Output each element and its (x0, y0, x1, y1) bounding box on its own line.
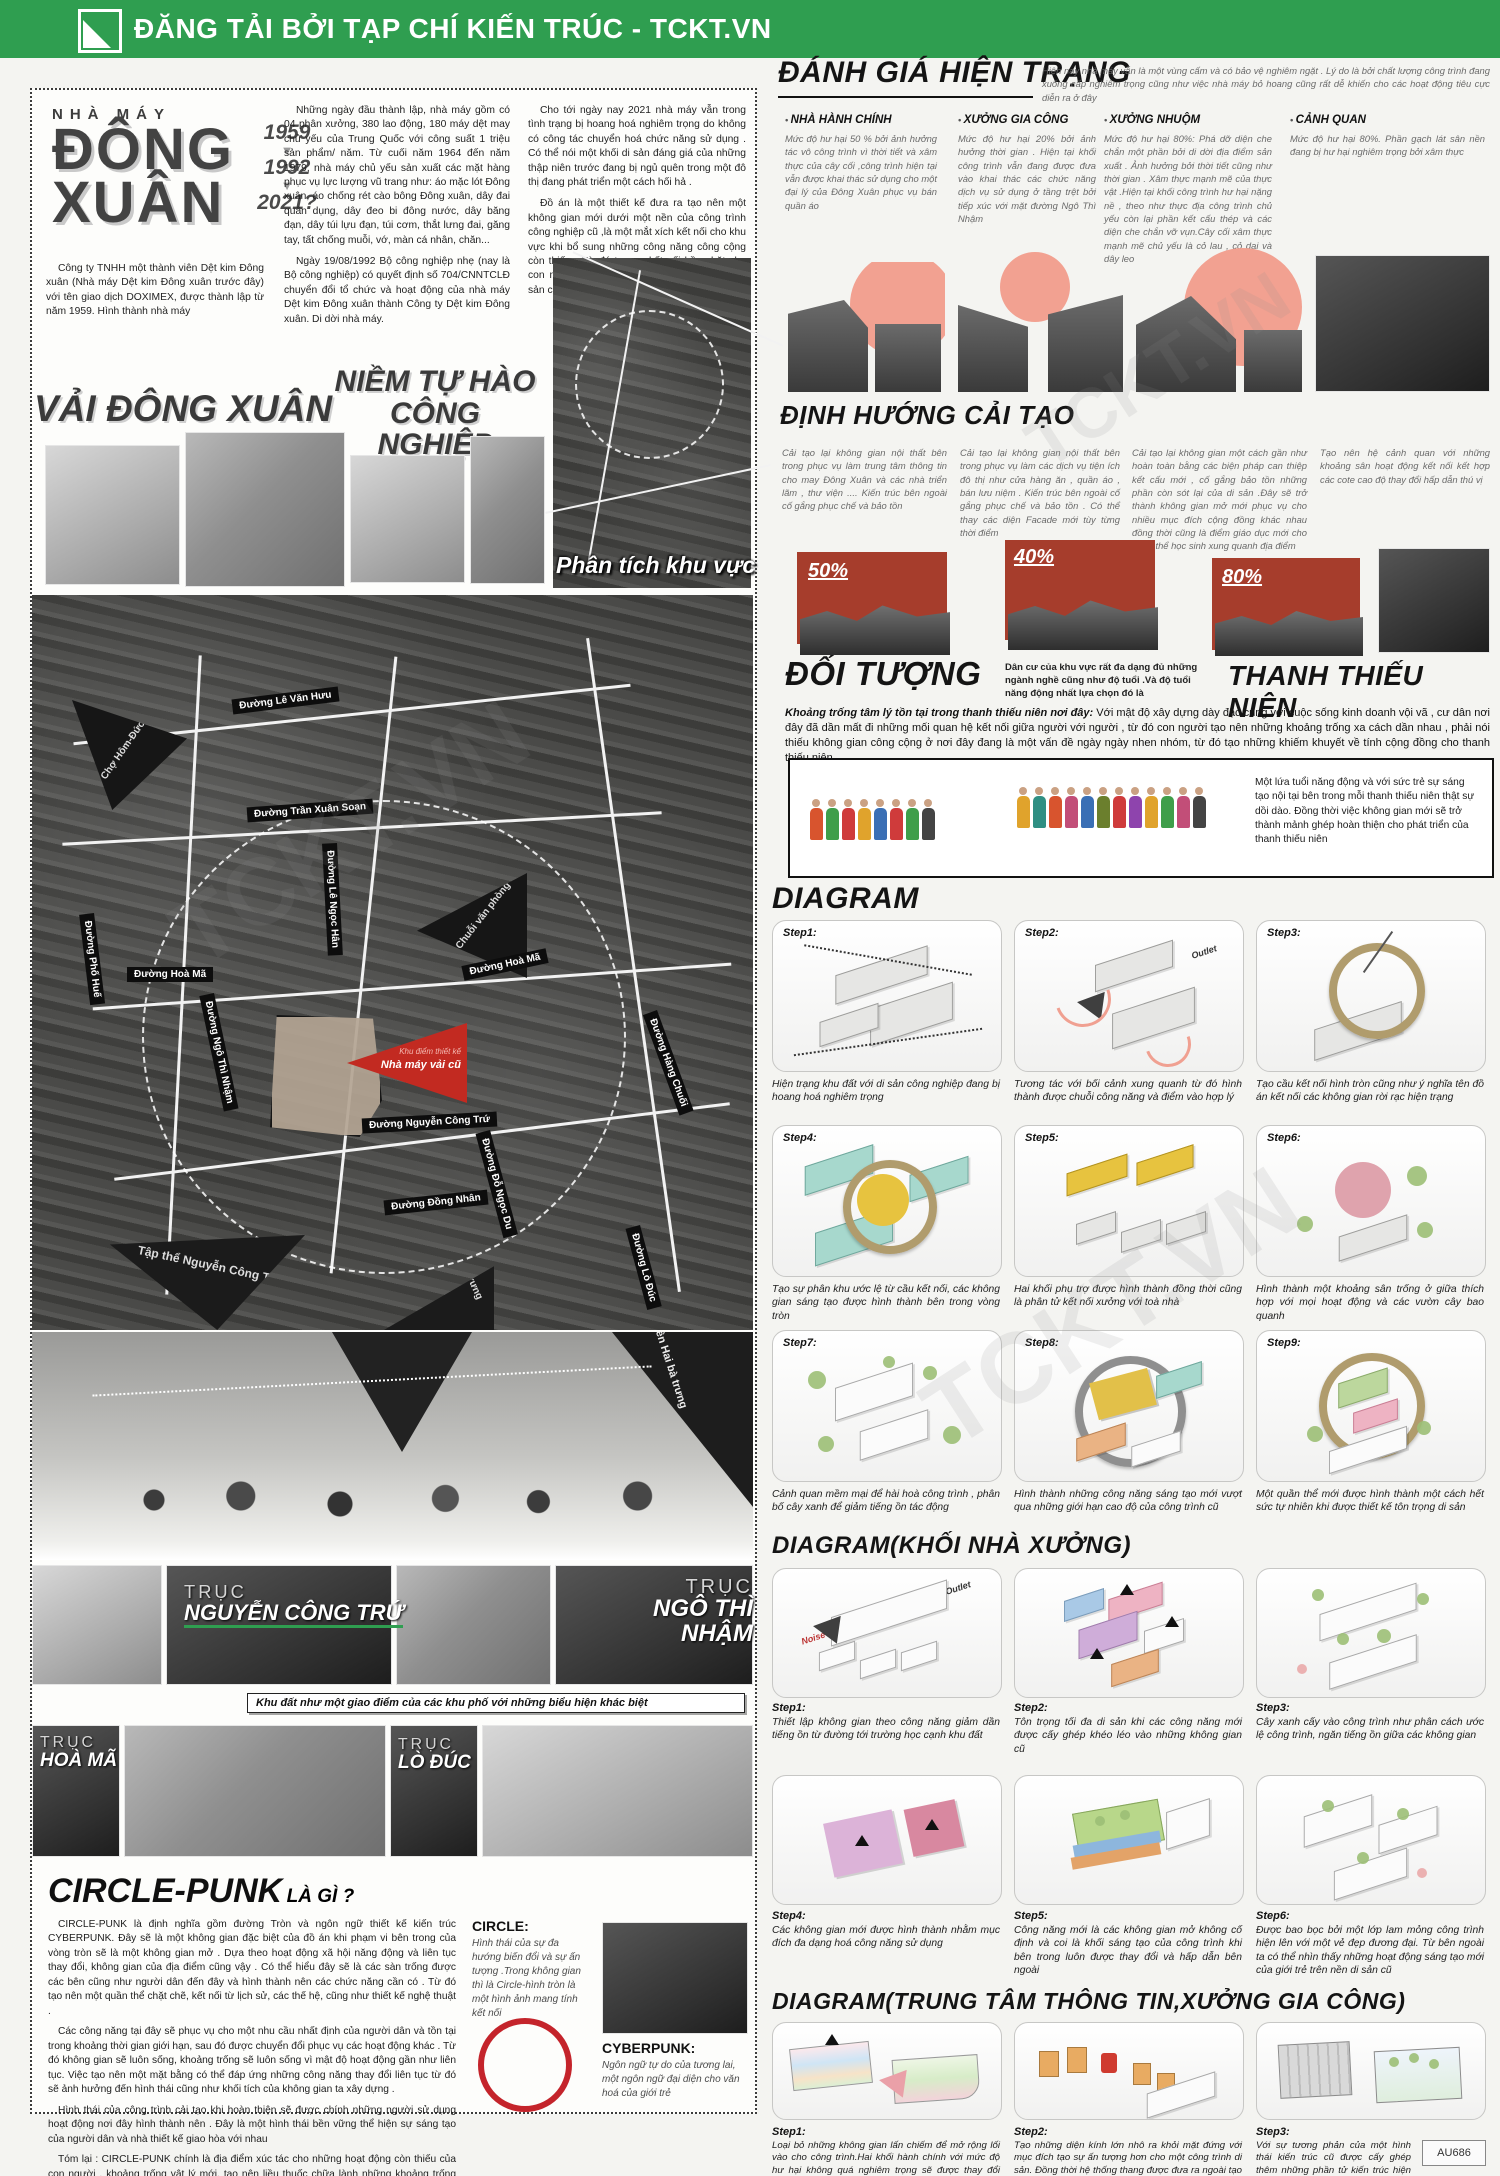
history-paragraphs: Những ngày đầu thành lập, nhà máy gồm có… (284, 104, 510, 334)
dinhhuong-item-text: Tạo nên hệ cảnh quan với những khoảng sâ… (1320, 446, 1490, 486)
history-text-2: Ngày 19/08/1992 Bộ công nghiệp nhẹ (nay … (284, 255, 510, 327)
circlepunk-p3: Hình thái của công trình cải tạo khi hoà… (48, 2104, 456, 2147)
circlepunk-section: CIRCLE-PUNK LÀ GÌ ? (48, 1872, 748, 1911)
axis-prefix: TRỤC (184, 1583, 403, 1602)
axis-name: NGUYỄN CÔNG TRỨ (184, 1600, 403, 1628)
doituong-lead: Khoảng trống tâm lý tồn tại trong thanh … (785, 706, 1490, 765)
diagram3-step2-card (1014, 2022, 1244, 2120)
step-caption: Tương tác với bối cảnh xung quanh từ đó … (1014, 1078, 1242, 1105)
dinhhuong-item-text: Cải tạo lại không gian nội thất bên tron… (960, 446, 1120, 539)
present-text-1: Cho tới ngày nay 2021 nhà máy vẫn trong … (528, 104, 746, 190)
board-code: AU686 (1422, 2140, 1486, 2166)
teen-box-text: Một lứa tuổi năng động và với sức trẻ sự… (1255, 776, 1477, 847)
diagram3-step3-card (1256, 2022, 1486, 2120)
diagram2-step6-caption: Step6: Được bao bọc bởi một lớp lam mỏng… (1256, 1910, 1484, 1978)
diagram1-step4-card: Step4: (772, 1125, 1002, 1277)
company-text: Công ty TNHH một thành viên Dệt kim Đông… (46, 262, 264, 320)
step-label: Step1: (772, 1702, 1000, 1714)
headline-vai-dong-xuan: VẢI ĐÔNG XUÂN (34, 388, 332, 430)
axis-photo (32, 1565, 162, 1685)
circlepunk-title: CIRCLE-PUNK (48, 1872, 282, 1910)
step-label: Step5: (1014, 1910, 1242, 1922)
axis-photo-grid: TRỤC NGUYỄN CÔNG TRỨ TRỤC NGÔ THÌ NHẬM K… (32, 1565, 753, 1857)
diagram3-step2-caption: Step2: Tạo những diện kính lớn nhô ra kh… (1014, 2126, 1242, 2176)
step-label: Step4: (783, 1132, 817, 1144)
circlepunk-question: LÀ GÌ ? (287, 1886, 355, 1907)
danhgia-col-xuong-gia-cong: XƯỞNG GIA CÔNG Mức độ hư hại 20% bởi ảnh… (958, 114, 1096, 225)
cyberpunk-note-text: Ngôn ngữ tự do của tương lai, một ngôn n… (602, 2059, 748, 2101)
street-label: Đường Hoà Mã (127, 967, 213, 982)
step-caption: Tạo sự phân khu ước lệ từ cầu kết nối, c… (772, 1283, 1000, 1323)
diagram1-step6-card: Step6: (1256, 1125, 1486, 1277)
dinhhuong-title: ĐỊNH HƯỚNG CẢI TẠO (780, 400, 1074, 431)
condition-photo (958, 250, 1123, 392)
company-paragraph: Công ty TNHH một thành viên Dệt kim Đông… (46, 262, 264, 327)
dinhhuong-item-text: Cải tạo lại không gian nội thất bên tron… (782, 446, 947, 513)
step-caption: Một quần thể mới được hình thành một các… (1256, 1488, 1484, 1515)
step-label: Step2: (1014, 1702, 1242, 1714)
diagram1-step3-card: Step3: (1256, 920, 1486, 1072)
teen-group-photo (1015, 796, 1207, 833)
old-factory-photo (45, 445, 180, 585)
step-caption: Thiết lập không gian theo công năng giảm… (772, 1716, 1000, 1743)
axis-prefix: TRỤC (40, 1735, 117, 1751)
circlepunk-p1: CIRCLE-PUNK là định nghĩa gồm đường Tròn… (48, 1918, 456, 2019)
danhgia-col-title: XƯỞNG GIA CÔNG (958, 114, 1096, 126)
step-label: Step6: (1256, 1910, 1484, 1922)
step-label: Step3: (1267, 927, 1301, 939)
step-caption: Hình thành một khoảng sân trống ở giữa t… (1256, 1283, 1484, 1323)
diagram2-step1-card: OutletNoise (772, 1568, 1002, 1698)
street-crowd-silhouettes (92, 1452, 712, 1532)
step-caption: Tạo những diện kính lớn nhô ra khỏi mặt … (1014, 2140, 1242, 2176)
step-label: Step3: (1256, 2126, 1411, 2138)
step-caption: Các không gian mới được hình thành nhằm … (772, 1924, 1000, 1951)
site-tag: Nhà máy vải cũ (381, 1059, 461, 1071)
circlepunk-p4: Tóm lại : CIRCLE-PUNK chính là địa điểm … (48, 2153, 456, 2176)
step-caption: Được bao bọc bởi một lớp lam mỏng công t… (1256, 1924, 1484, 1978)
danhgia-col-text: Mức độ hư hại 50 % bởi ảnh hưởng tác vô … (785, 132, 937, 212)
diagram2-step5-caption: Step5: Công năng mới là các không gian m… (1014, 1910, 1242, 1978)
analysis-map-label: Phân tích khu vực (556, 552, 755, 579)
step-caption: Hiện trạng khu đất với di sản công nghiệ… (772, 1078, 1000, 1105)
diagram1-step2-card: Step2: Outlet (1014, 920, 1244, 1072)
step-caption: Loại bỏ những không gian lấn chiếm để mở… (772, 2140, 1000, 2176)
old-factory-photo (470, 436, 545, 584)
factory-name-dong: ĐÔNG (52, 123, 234, 176)
diagram2-title: DIAGRAM(KHỐI NHÀ XƯỞNG) (772, 1532, 1131, 1560)
poster-page: ĐĂNG TẢI BỞI TẠP CHÍ KIẾN TRÚC - TCKT.VN… (0, 0, 1500, 2176)
condition-photo-landscape (1315, 255, 1490, 392)
diagram3-step3-caption: Step3: Với sự tương phản của một hình th… (1256, 2126, 1411, 2176)
diagram2-step3-caption: Step3: Cây xanh cấy vào công trình như p… (1256, 1702, 1484, 1743)
diagram1-step8-card: Step8: (1014, 1330, 1244, 1482)
danhgia-col-title: XƯỞNG NHUỘM (1104, 114, 1272, 126)
street-label: Đường Phố Huế (79, 913, 105, 1005)
axis-caption: Khu đất như một giao điểm của các khu ph… (247, 1693, 745, 1713)
step-label: Step2: (1025, 927, 1059, 939)
circlepunk-body: CIRCLE-PUNK là định nghĩa gồm đường Tròn… (48, 1918, 456, 2176)
damage-percent: 40% (1014, 546, 1054, 569)
danhgia-col-xuong-nhuom: XƯỞNG NHUỘM Mức độ hư hại 80%: Phá dỡ di… (1104, 114, 1272, 265)
diagram2-step1-caption: Step1: Thiết lập không gian theo công nă… (772, 1702, 1000, 1743)
old-factory-photo (350, 455, 465, 583)
danhgia-col-title: CẢNH QUAN (1290, 114, 1485, 126)
site-tag-small: Khu điểm thiết kế (399, 1047, 461, 1056)
step-caption: Hai khối phụ trợ được hình thành đồng th… (1014, 1283, 1242, 1310)
step-caption: Cây xanh cấy vào công trình như phân các… (1256, 1716, 1484, 1743)
circle-note-text: Hình thái của sự đa hướng biến đổi và sự… (472, 1937, 590, 2021)
dinhhuong-item-text: Cải tạo lại không gian một cách gần như … (1132, 446, 1307, 553)
diagram2-step5-card (1014, 1775, 1244, 1905)
circlepunk-p2: Các công năng tại đây sẽ phục vụ cho một… (48, 2025, 456, 2097)
diagram1-title: DIAGRAM (772, 882, 919, 916)
title-underline (778, 96, 1033, 98)
diagram1-step1-card: Step1: (772, 920, 1002, 1072)
danhgia-col-text: Mức độ hư hại 80%. Phần gạch lát sân nền… (1290, 132, 1485, 159)
circle-note: CIRCLE: Hình thái của sự đa hướng biến đ… (472, 1918, 590, 2021)
diagram2-step6-card (1256, 1775, 1486, 1905)
axis-label-lo-duc: TRỤC LÒ ĐÚC (398, 1737, 471, 1773)
doituong-lead-label: Khoảng trống tâm lý tồn tại trong thanh … (785, 707, 1093, 719)
diagram3-title: DIAGRAM(TRUNG TÂM THÔNG TIN,XƯỞNG GIA CÔ… (772, 1988, 1405, 2015)
diagram3-step1-caption: Step1: Loại bỏ những không gian lấn chiế… (772, 2126, 1000, 2176)
cyberpunk-note-title: CYBERPUNK: (602, 2040, 748, 2056)
diagram2-step4-caption: Step4: Các không gian mới được hình thàn… (772, 1910, 1000, 1951)
axis-label-ngo-thi-nham: TRỤC NGÔ THÌ NHẬM (580, 1577, 753, 1646)
diagram2-step3-card (1256, 1568, 1486, 1698)
factory-name-xuan: XUÂN (52, 176, 234, 229)
diagram1-step9-card: Step9: (1256, 1330, 1486, 1482)
axis-name: HOÀ MÃ (40, 1750, 117, 1771)
diagram3-step1-card (772, 2022, 1002, 2120)
site-map: Đường Lê Văn Hưu Đường Trần Xuân Soạn Đư… (32, 595, 753, 1330)
danhgia-col-text: Mức độ hư hại 80%: Phá dỡ diện che chắn … (1104, 132, 1272, 265)
step-label: Step8: (1025, 1337, 1059, 1349)
street-label: Đường Lê Văn Hưu (231, 687, 339, 715)
place-marker: Chợ Hôm-Đức Viên (72, 700, 187, 810)
street-wedge (332, 1332, 472, 1452)
condition-photo (780, 262, 945, 392)
doituong-title: ĐỐI TƯỢNG (785, 655, 981, 693)
history-text-1: Những ngày đầu thành lập, nhà máy gồm có… (284, 104, 510, 248)
step-label: Step9: (1267, 1337, 1301, 1349)
axis-photo (124, 1725, 386, 1857)
axis-photo (396, 1565, 551, 1685)
axis-name: NGÔ THÌ NHẬM (653, 1595, 753, 1646)
street-collage: Đền Hai bà trưng (32, 1332, 753, 1560)
danhgia-col-canh-quan: CẢNH QUAN Mức độ hư hại 80%. Phần gạch l… (1290, 114, 1485, 159)
step-label: Step5: (1025, 1132, 1059, 1144)
axis-prefix: TRỤC (398, 1737, 471, 1753)
damage-percent: 80% (1222, 566, 1262, 589)
analysis-map (553, 258, 751, 588)
step-label: Step4: (772, 1910, 1000, 1922)
step-caption: Công năng mới là các không gian mở không… (1014, 1924, 1242, 1978)
step-label: Step3: (1256, 1702, 1484, 1714)
danhgia-col-text: Mức độ hư hại 20% bởi ảnh hưởng thời gia… (958, 132, 1096, 225)
outlet-micro-label: Outlet (944, 1579, 972, 1597)
header-brand: ĐĂNG TẢI BỞI TẠP CHÍ KIẾN TRÚC - TCKT.VN (134, 13, 772, 45)
danhgia-intro: Hiện nay nhà máy vẫn là một vùng cấm và … (1042, 64, 1490, 104)
circle-icon (478, 2018, 572, 2112)
axis-label-nguyen-cong-tru: TRỤC NGUYỄN CÔNG TRỨ (184, 1583, 403, 1624)
step-caption: Tạo cầu kết nối hình tròn cũng như ý ngh… (1256, 1078, 1484, 1105)
diagram1-step7-card: Step7: (772, 1330, 1002, 1482)
axis-photo (482, 1725, 753, 1857)
diagram2-step4-card (772, 1775, 1002, 1905)
factory-title-block: NHÀ MÁY ĐÔNG XUÂN (52, 106, 234, 230)
place-marker: Tập thể Nguyễn Công Trứ (110, 1235, 305, 1330)
teen-box: Một lứa tuổi năng động và với sức trẻ sự… (788, 758, 1494, 878)
outlet-micro-label: Outlet (1190, 943, 1218, 961)
teen-group-photo (808, 808, 936, 845)
place-marker-label: Đền Hai bà trưng (650, 1332, 689, 1411)
step-label: Step1: (783, 927, 817, 939)
step-label: Step7: (783, 1337, 817, 1349)
condition-photo (1132, 248, 1302, 392)
step-label: Step1: (772, 2126, 1000, 2138)
step-label: Step6: (1267, 1132, 1301, 1144)
step-caption: Hình thành những công năng sáng tạo mới … (1014, 1488, 1242, 1515)
step-caption: Tôn trọng tối đa di sản khi các công năn… (1014, 1716, 1242, 1756)
danhgia-col-nha-hanh-chinh: NHÀ HÀNH CHÍNH Mức độ hư hại 50 % bởi ản… (785, 114, 937, 212)
axis-name: LÒ ĐÚC (398, 1752, 471, 1773)
diagram2-step2-card (1014, 1568, 1244, 1698)
circle-note-title: CIRCLE: (472, 1918, 590, 1934)
diagram1-step5-card: Step5: (1014, 1125, 1244, 1277)
step-caption: Cảnh quan mềm mại để hài hoà công trình … (772, 1488, 1000, 1515)
landscape-photo (1378, 548, 1490, 653)
doituong-subtitle: Dân cư của khu vực rất đa dạng đủ những … (1005, 662, 1215, 700)
step-label: Step2: (1014, 2126, 1242, 2138)
diagram2-step2-caption: Step2: Tôn trọng tối đa di sản khi các c… (1014, 1702, 1242, 1756)
cyberpunk-photo (602, 1922, 748, 2034)
old-factory-photo (185, 432, 345, 587)
tckt-logo-icon (78, 9, 122, 53)
cyberpunk-note: CYBERPUNK: Ngôn ngữ tự do của tương lai,… (602, 2040, 748, 2101)
street-label: Đường Lò Đúc (626, 1225, 662, 1310)
danhgia-col-title: NHÀ HÀNH CHÍNH (785, 114, 937, 126)
header-bar: ĐĂNG TẢI BỞI TẠP CHÍ KIẾN TRÚC - TCKT.VN (0, 0, 1500, 58)
axis-label-hoa-ma: TRỤC HOÀ MÃ (40, 1735, 117, 1771)
step-caption: Với sự tương phản của một hình thái kiến… (1256, 2140, 1411, 2176)
damage-percent: 50% (808, 560, 848, 583)
